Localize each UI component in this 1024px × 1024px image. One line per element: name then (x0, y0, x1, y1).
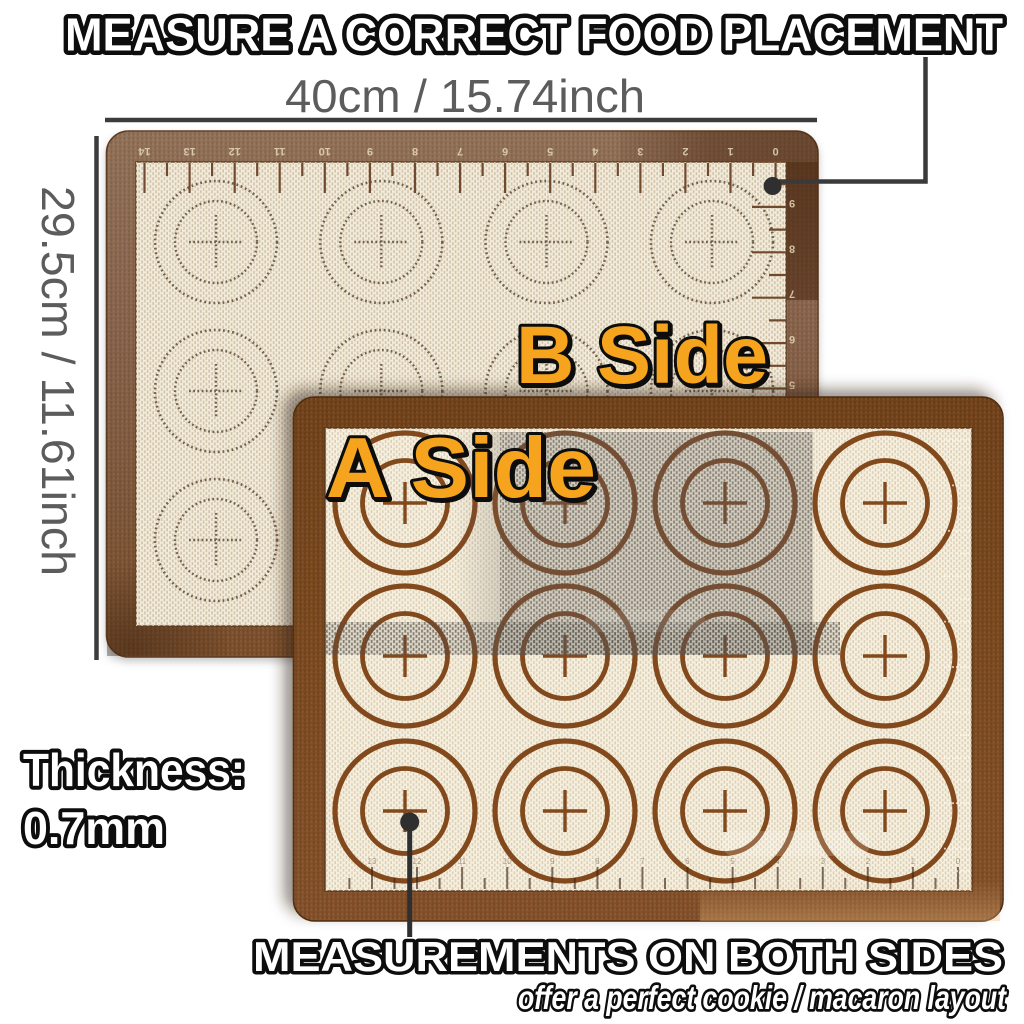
svg-text:13: 13 (183, 145, 195, 157)
svg-text:offer a perfect cookie / macar: offer a perfect cookie / macaron layout (518, 979, 1008, 1016)
svg-text:8: 8 (789, 242, 795, 254)
svg-text:29.5cm / 11.61inch: 29.5cm / 11.61inch (32, 186, 84, 576)
svg-text:2: 2 (682, 145, 688, 157)
svg-text:6: 6 (685, 857, 690, 866)
svg-text:7: 7 (789, 288, 795, 300)
svg-text:14: 14 (138, 145, 151, 157)
svg-text:A Side: A Side (326, 421, 596, 516)
svg-text:1: 1 (727, 145, 733, 157)
svg-text:4: 4 (591, 145, 598, 157)
svg-text:9: 9 (367, 145, 373, 157)
svg-text:0.7mm: 0.7mm (23, 802, 165, 854)
svg-text:MEASURE A CORRECT FOOD PLACEME: MEASURE A CORRECT FOOD PLACEMENT (65, 9, 1003, 61)
svg-text:1: 1 (911, 857, 916, 866)
svg-text:5: 5 (789, 378, 795, 390)
svg-text:11: 11 (458, 857, 467, 866)
svg-text:10: 10 (319, 145, 331, 157)
svg-text:12: 12 (413, 857, 422, 866)
svg-text:MEASUREMENTS ON BOTH SIDES: MEASUREMENTS ON BOTH SIDES (253, 933, 1003, 980)
svg-text:4: 4 (775, 857, 780, 866)
svg-text:2: 2 (866, 857, 871, 866)
svg-text:9: 9 (789, 197, 795, 209)
svg-text:6: 6 (502, 145, 508, 157)
svg-text:5: 5 (547, 145, 553, 157)
svg-text:8: 8 (412, 145, 418, 157)
svg-text:7: 7 (457, 145, 463, 157)
svg-text:0: 0 (956, 857, 961, 866)
svg-text:Thickness:: Thickness: (23, 744, 245, 796)
svg-text:3: 3 (637, 145, 643, 157)
svg-text:8: 8 (595, 857, 600, 866)
svg-text:13: 13 (368, 857, 377, 866)
svg-text:0: 0 (773, 145, 779, 157)
svg-text:9: 9 (550, 857, 555, 866)
svg-text:10: 10 (503, 857, 512, 866)
svg-text:11: 11 (274, 145, 286, 157)
svg-text:5: 5 (730, 857, 735, 866)
svg-text:40cm / 15.74inch: 40cm / 15.74inch (285, 70, 645, 122)
svg-text:7: 7 (640, 857, 645, 866)
svg-text:6: 6 (789, 333, 795, 345)
svg-text:3: 3 (821, 857, 826, 866)
svg-text:B Side: B Side (516, 310, 768, 401)
svg-text:12: 12 (229, 145, 241, 157)
